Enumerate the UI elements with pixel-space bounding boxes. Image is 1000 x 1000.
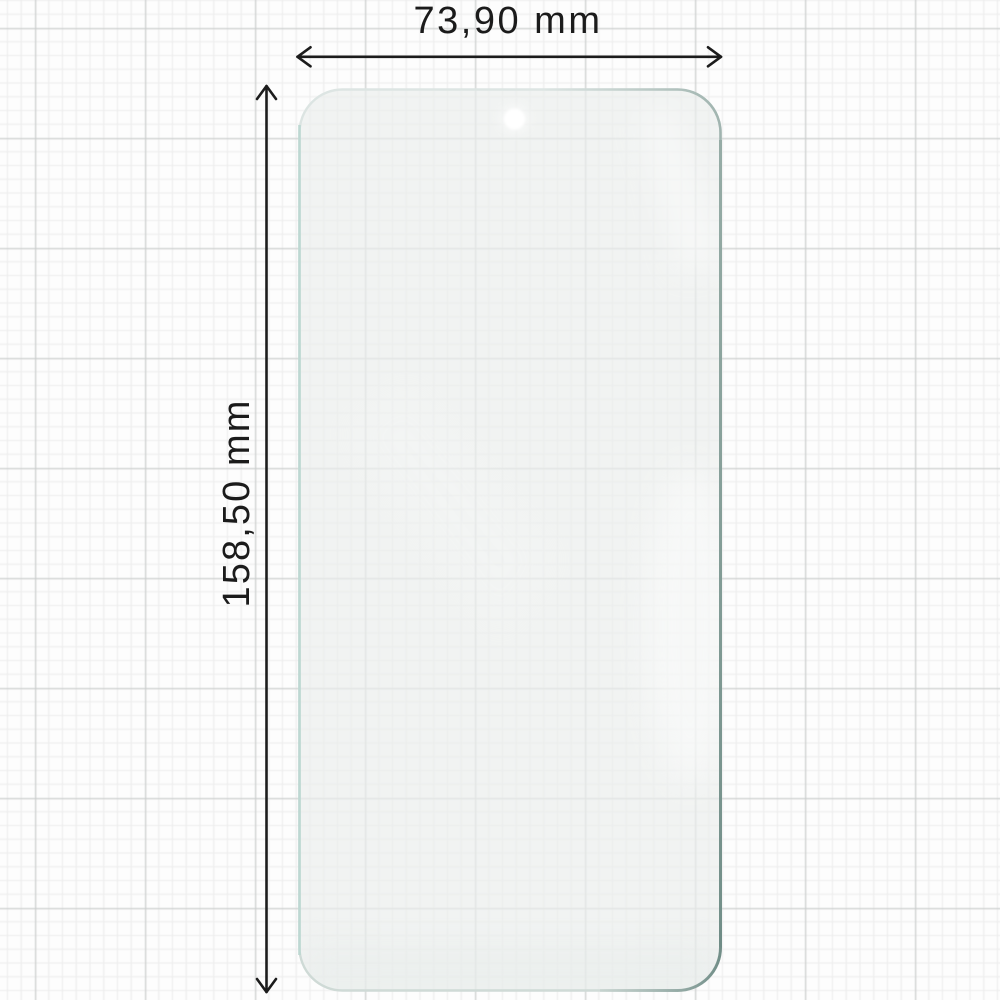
svg-text:73,90 mm: 73,90 mm	[414, 0, 603, 42]
svg-text:158,50 mm: 158,50 mm	[216, 399, 258, 608]
